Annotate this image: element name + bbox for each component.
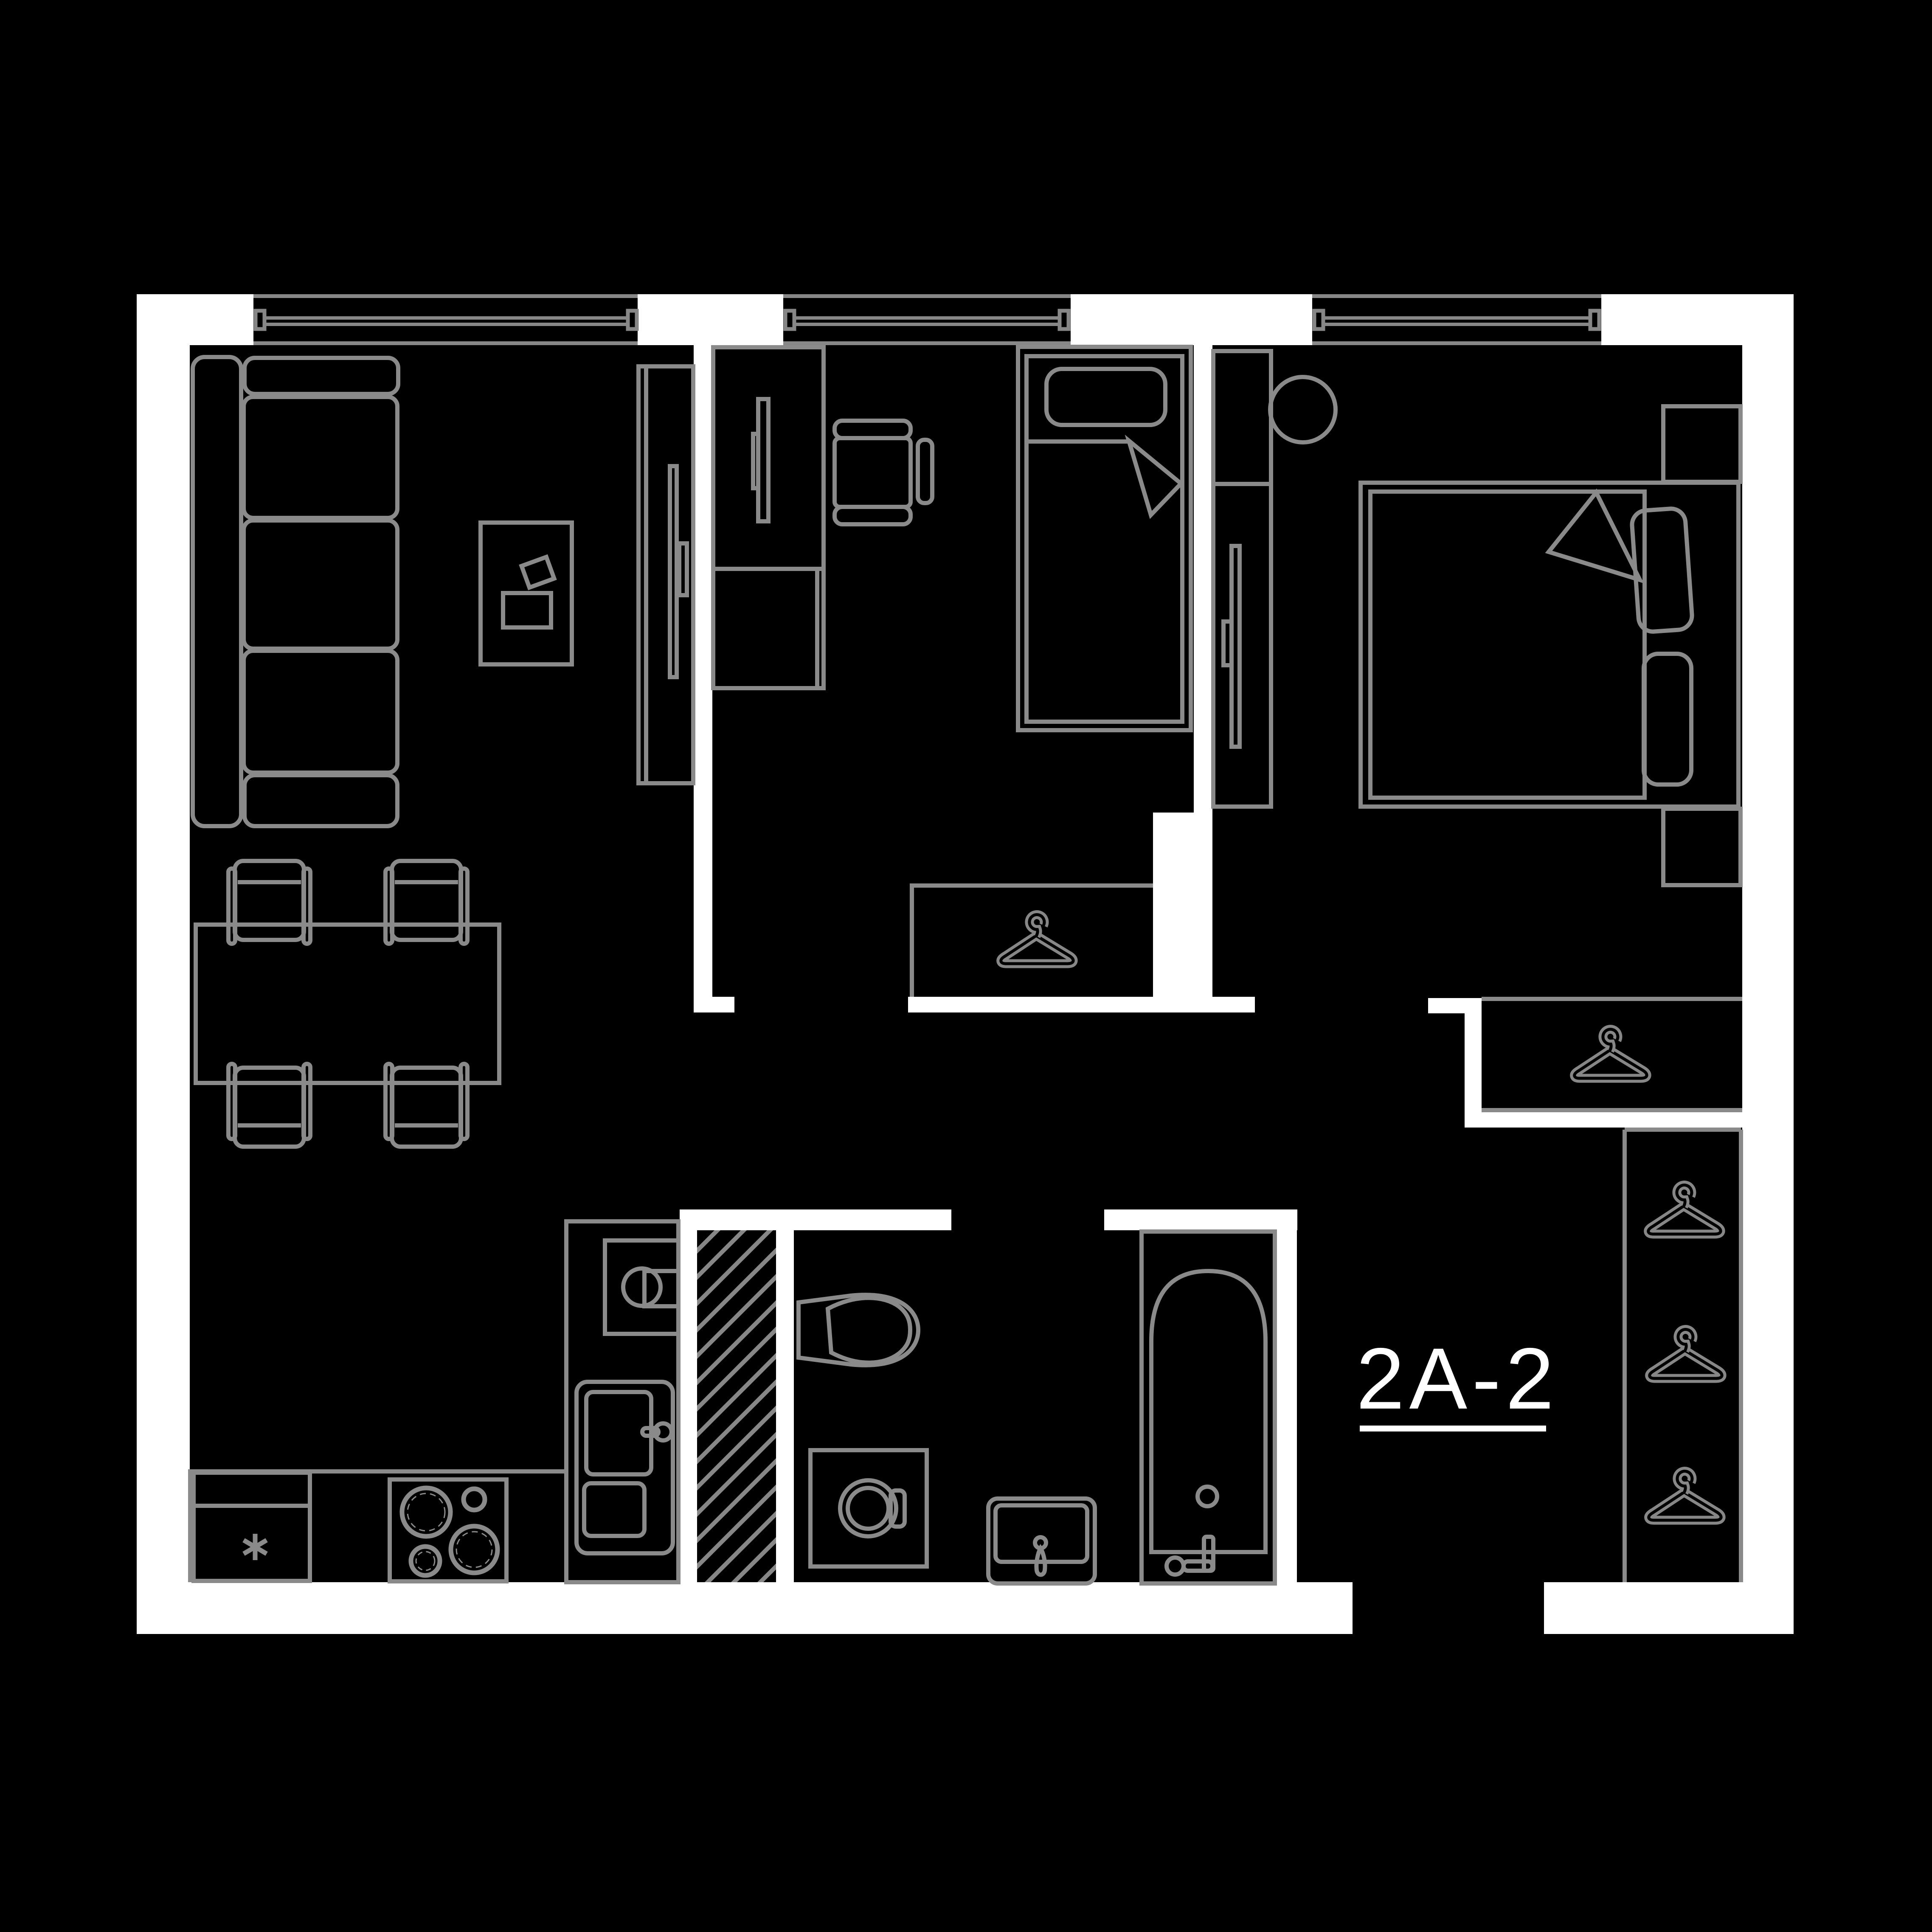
svg-text:2A-2: 2A-2 xyxy=(1356,1330,1558,1427)
